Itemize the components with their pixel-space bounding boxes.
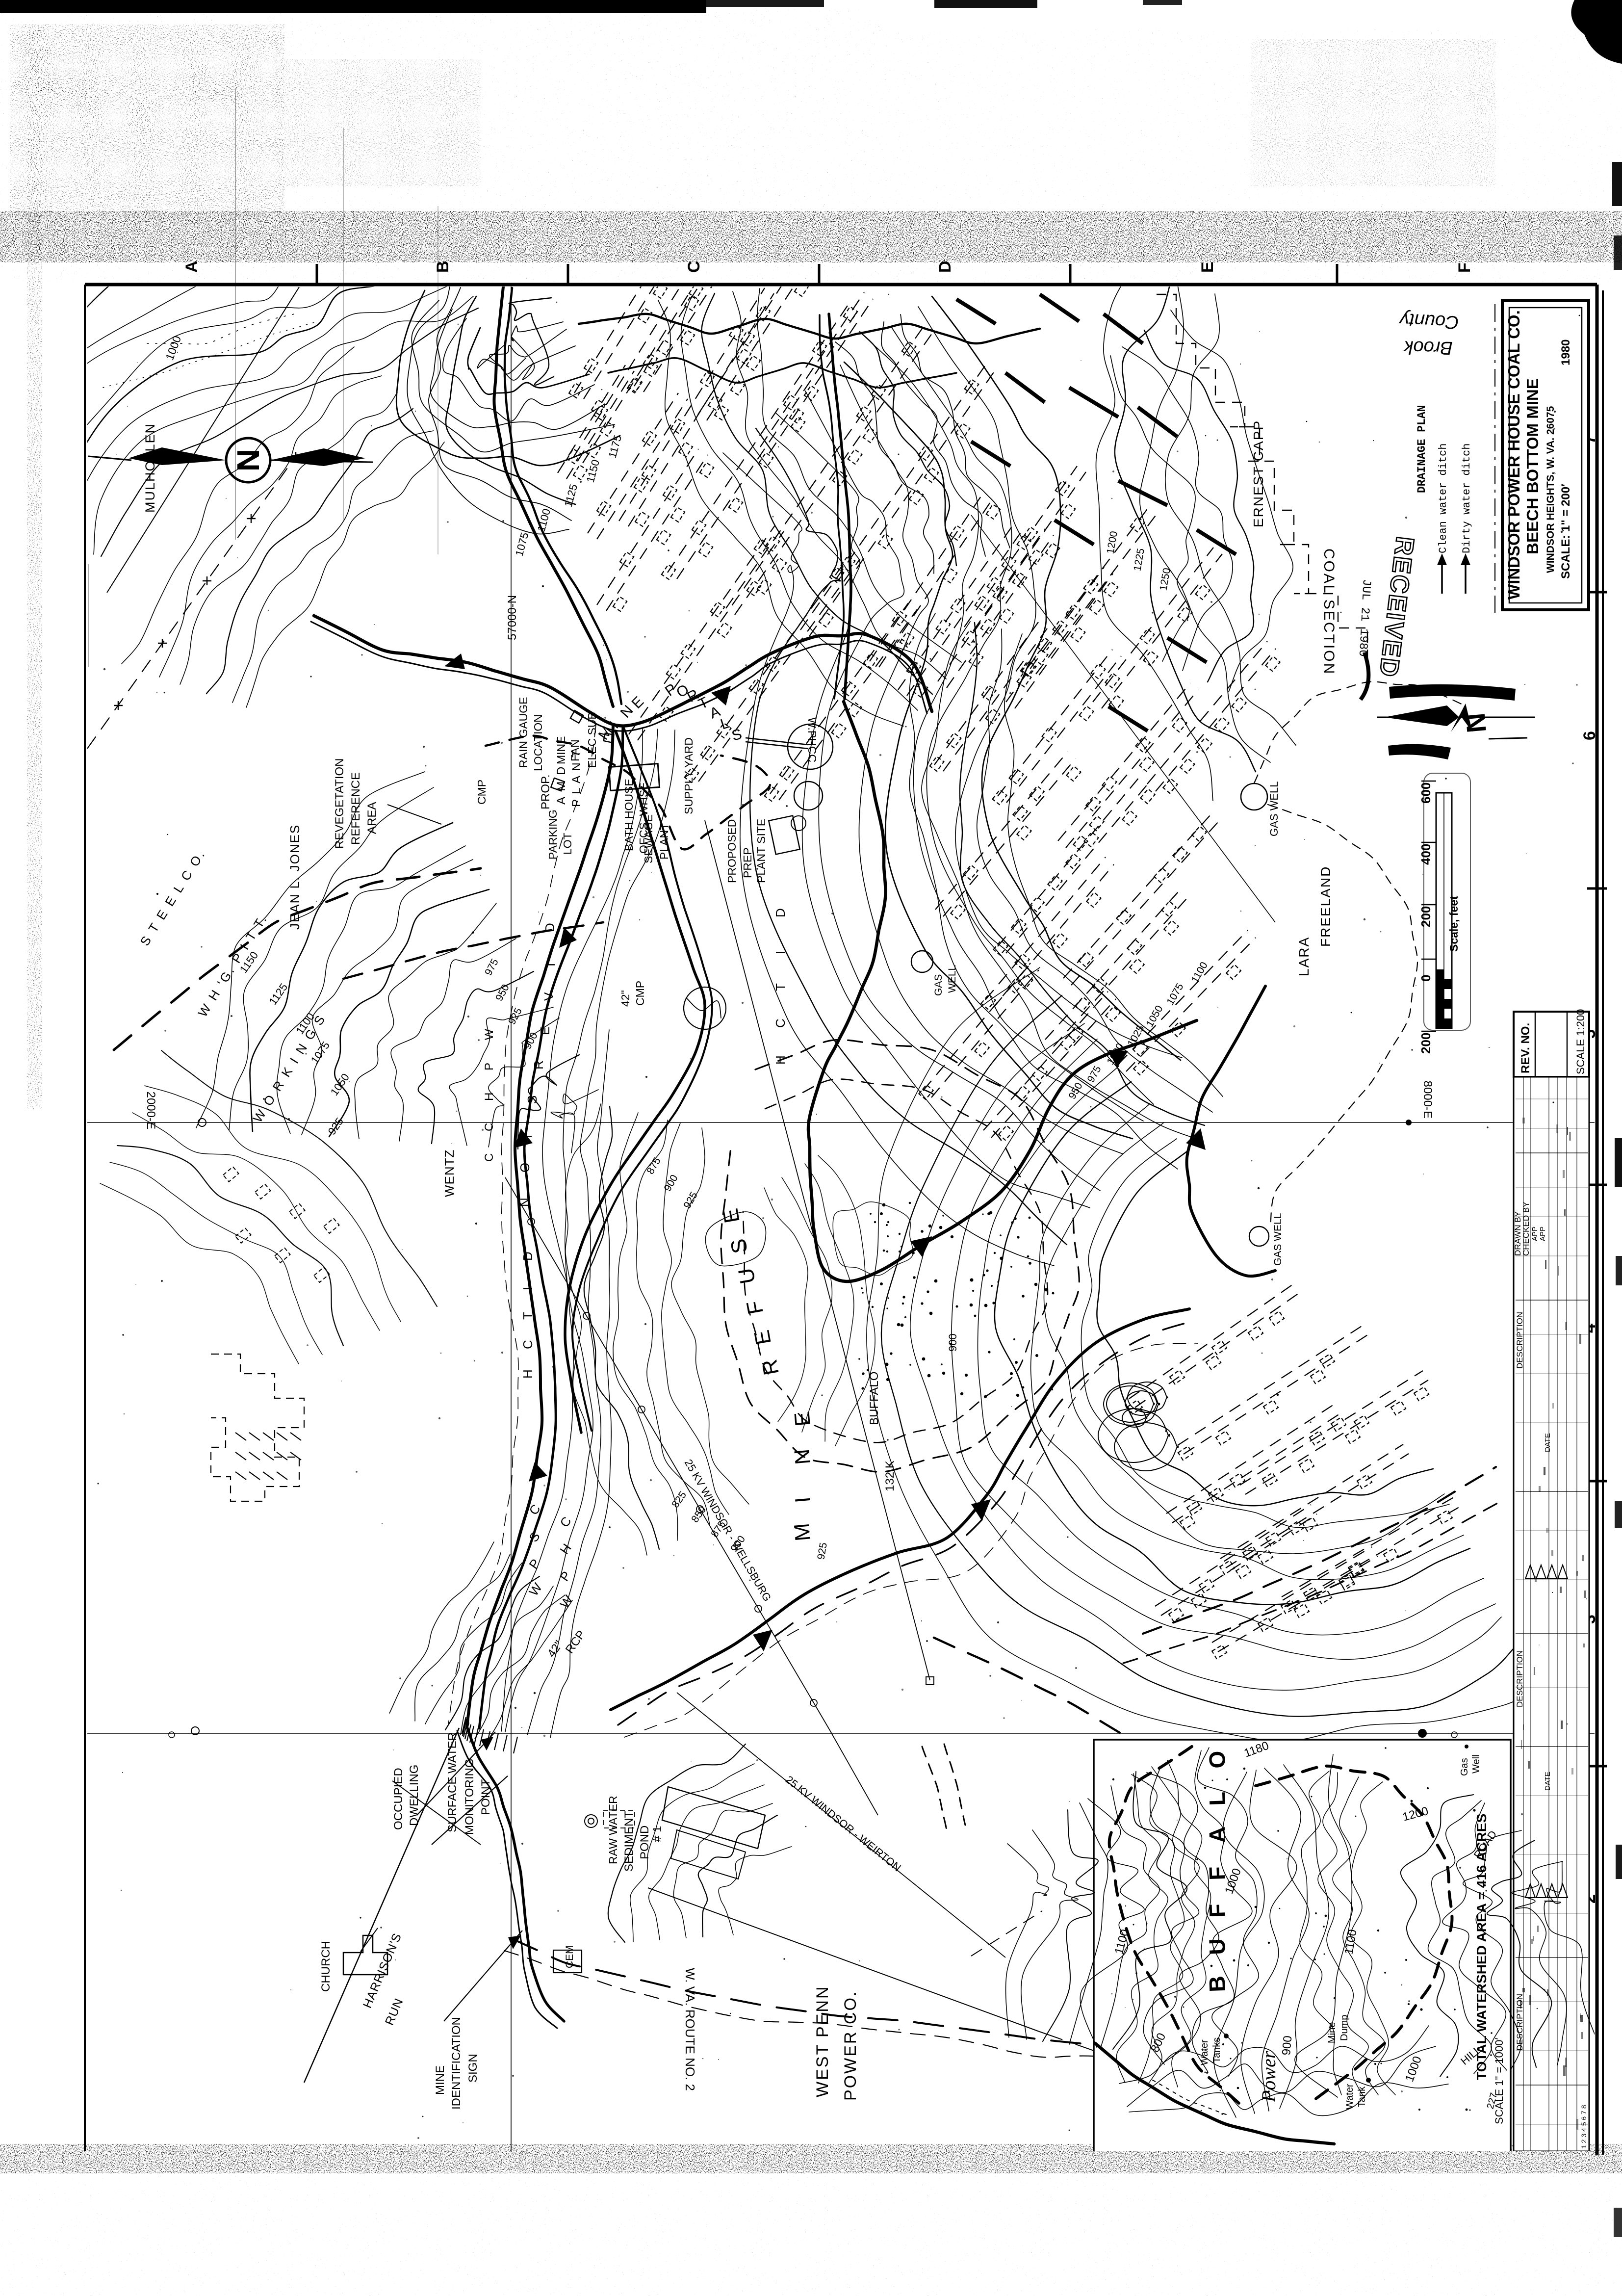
svg-text:DWELLING: DWELLING [408,1765,421,1826]
svg-text:APP: APP [1539,1226,1547,1241]
svg-text:IDENTIFICATION: IDENTIFICATION [450,2017,463,2110]
svg-text:200: 200 [1418,1033,1433,1054]
svg-text:GAS WELL: GAS WELL [1272,1213,1284,1266]
svg-text:WENTZ: WENTZ [442,1149,457,1197]
svg-text:C: C [773,1018,788,1028]
svg-text:BUFFALO: BUFFALO [868,1372,881,1425]
svg-text:132 K: 132 K [883,1461,897,1491]
svg-text:C: C [520,1340,535,1349]
svg-text:SCALE 1" = 1000′: SCALE 1" = 1000′ [1493,2038,1505,2124]
svg-text:DESCRIPTION: DESCRIPTION [1515,1994,1524,2051]
svg-text:SUPPLY YARD: SUPPLY YARD [682,737,695,814]
svg-text:E: E [1198,261,1217,273]
svg-text:BATH HOUSE: BATH HOUSE [622,779,635,851]
svg-text:POWER CO.: POWER CO. [841,1990,860,2101]
svg-text:COAL SECTION: COAL SECTION [1321,548,1337,675]
svg-text:SEDIMENT: SEDIMENT [622,1811,636,1872]
svg-text:APP: APP [1531,1226,1539,1241]
svg-text:Brook: Brook [1403,337,1453,358]
svg-text:I: I [520,1135,535,1138]
svg-text:CHECKED BY: CHECKED BY [1521,1201,1531,1256]
svg-text:A M D: A M D [555,765,568,805]
svg-text:CHURCH: CHURCH [319,1941,333,1992]
svg-text:E: E [790,1411,815,1428]
svg-text:PROPOSED: PROPOSED [725,819,738,883]
svg-text:D: D [773,908,788,917]
svg-text:F: F [1204,1904,1230,1918]
svg-text:PROP.: PROP. [539,774,552,809]
svg-text:H: H [520,1369,535,1379]
svg-text:S: S [525,1096,540,1104]
svg-text:OFCS. WHSE: OFCS. WHSE [637,782,650,854]
svg-text:Water: Water [1199,2039,1210,2065]
svg-text:200: 200 [1418,906,1433,927]
svg-text:F: F [1455,262,1474,273]
svg-text:PARKING: PARKING [546,809,559,860]
svg-text:TOTAL WATERSHED AREA = 416: TOTAL WATERSHED AREA = 416 ACRES [1474,1814,1489,2080]
svg-text:E: E [538,1027,552,1035]
svg-text:REV. NO.: REV. NO. [1519,1023,1532,1073]
svg-text:DATE: DATE [1544,1772,1552,1791]
svg-text:1980: 1980 [1559,339,1572,365]
svg-text:LOT: LOT [561,833,574,855]
svg-text:Dump: Dump [1339,2015,1350,2041]
svg-text:GAS WELL: GAS WELL [1268,782,1280,836]
svg-text:O: O [1204,1750,1230,1769]
svg-text:Tanks: Tanks [1211,2037,1222,2063]
svg-text:Tank: Tank [1357,2086,1367,2107]
svg-text:LOCATION: LOCATION [532,714,544,771]
svg-text:CMP: CMP [634,981,646,1006]
svg-text:LARA: LARA [1296,937,1312,976]
svg-text:8000-E: 8000-E [1421,1081,1434,1119]
svg-text:Clean water ditch: Clean water ditch [1437,444,1449,553]
svg-text:WEST PENN: WEST PENN [813,1985,832,2097]
svg-text:2000-E: 2000-E [144,1092,157,1129]
svg-text:P: P [483,1063,496,1070]
svg-text:SIGN: SIGN [466,2054,480,2083]
svg-text:BEECH BOTTOM MINE: BEECH BOTTOM MINE [1523,378,1542,554]
svg-text:MINE: MINE [434,2065,447,2095]
svg-text:DESCRIPTION: DESCRIPTION [1515,1312,1524,1369]
svg-text:A: A [1204,1826,1230,1843]
svg-text:R: R [531,1060,546,1070]
svg-text:AREA: AREA [365,802,379,834]
svg-text:D: D [542,923,557,932]
svg-text:W. VA. ROUTE NO. 2: W. VA. ROUTE NO. 2 [683,1968,697,2091]
svg-text:RAW WATER: RAW WATER [607,1796,619,1864]
svg-text:DESCRIPTION: DESCRIPTION [1515,1650,1524,1707]
svg-text:Well: Well [1471,1754,1482,1774]
svg-text:42": 42" [619,990,632,1007]
svg-text:I: I [520,1287,535,1290]
svg-text:Dirty water ditch: Dirty water ditch [1461,444,1473,553]
svg-text:RAIN GAUGE: RAIN GAUGE [517,697,530,768]
svg-text:O: O [517,1163,532,1173]
svg-text:B: B [434,261,452,273]
svg-text:POINT: POINT [479,1779,492,1815]
svg-text:M: M [790,1522,815,1542]
svg-text:REVEGETATION: REVEGETATION [333,758,346,849]
svg-text:ELEC SUB: ELEC SUB [586,712,598,768]
svg-text:POND: POND [638,1826,651,1859]
svg-text:# 1: # 1 [651,1826,664,1842]
svg-text:F: F [1204,1866,1230,1881]
svg-text:County: County [1398,309,1459,333]
svg-text:N: N [790,1448,815,1465]
svg-text:MINE: MINE [555,736,567,765]
svg-text:CMP: CMP [475,780,488,805]
svg-text:DATE: DATE [1544,1433,1552,1452]
svg-text:Gas: Gas [1459,1758,1470,1776]
svg-text:D: D [520,1252,535,1261]
svg-text:A: A [182,261,201,273]
svg-text:C: C [685,261,703,273]
svg-text:Water: Water [1344,2084,1355,2110]
svg-text:SCALE 1:200: SCALE 1:200 [1574,1009,1587,1074]
svg-text:900: 900 [1280,2035,1294,2056]
svg-text:Power: Power [1258,2051,1280,2103]
svg-text:WELL: WELL [947,965,958,993]
svg-text:H: H [483,1093,496,1101]
svg-text:400: 400 [1418,844,1433,865]
svg-text:0: 0 [1418,975,1433,982]
svg-text:C: C [483,1123,496,1131]
svg-text:600: 600 [1418,783,1433,804]
svg-text:B: B [1204,1975,1230,1992]
svg-text:W: W [483,1029,496,1040]
svg-text:FAN: FAN [568,739,581,761]
svg-text:WINDSOR HEIGHTS, W. VA. 2: WINDSOR HEIGHTS, W. VA. 26075 [1545,406,1556,573]
svg-text:U: U [1204,1938,1230,1955]
svg-text:GAS: GAS [933,974,944,996]
svg-text:900: 900 [947,1333,959,1352]
svg-text:PLANT: PLANT [658,823,670,860]
svg-text:V: V [541,992,556,1001]
svg-text:1 2 3 4 5 6 7 8: 1 2 3 4 5 6 7 8 [1580,2105,1588,2149]
svg-text:L: L [1204,1792,1230,1806]
svg-text:DRAINAGE PLAN: DRAINAGE PLAN [1416,405,1428,493]
svg-text:C: C [483,1153,496,1162]
svg-text:N: N [1460,712,1492,734]
svg-text:WINDSOR POWER HOUSE COAL C: WINDSOR POWER HOUSE COAL CO. [1505,310,1523,600]
svg-text:OCCUPIED: OCCUPIED [392,1768,405,1830]
svg-text:D: D [936,261,954,273]
svg-text:REFERENCE: REFERENCE [349,772,362,845]
svg-text:Scale, feet: Scale, feet [1447,896,1460,952]
svg-text:6: 6 [1580,731,1599,740]
svg-text:MULHOLLEN: MULHOLLEN [143,423,157,513]
svg-text:57000-N: 57000-N [506,595,519,640]
svg-text:Mine: Mine [1327,2022,1338,2043]
svg-text:CEM: CEM [564,1945,575,1968]
svg-text:ERNEST CAPP: ERNEST CAPP [1251,420,1266,527]
svg-text:PREP: PREP [741,847,754,878]
svg-text:I: I [543,963,558,966]
svg-text:MONITORING: MONITORING [463,1758,476,1835]
svg-text:FREELAND: FREELAND [1318,866,1333,947]
svg-text:T: T [520,1312,535,1320]
